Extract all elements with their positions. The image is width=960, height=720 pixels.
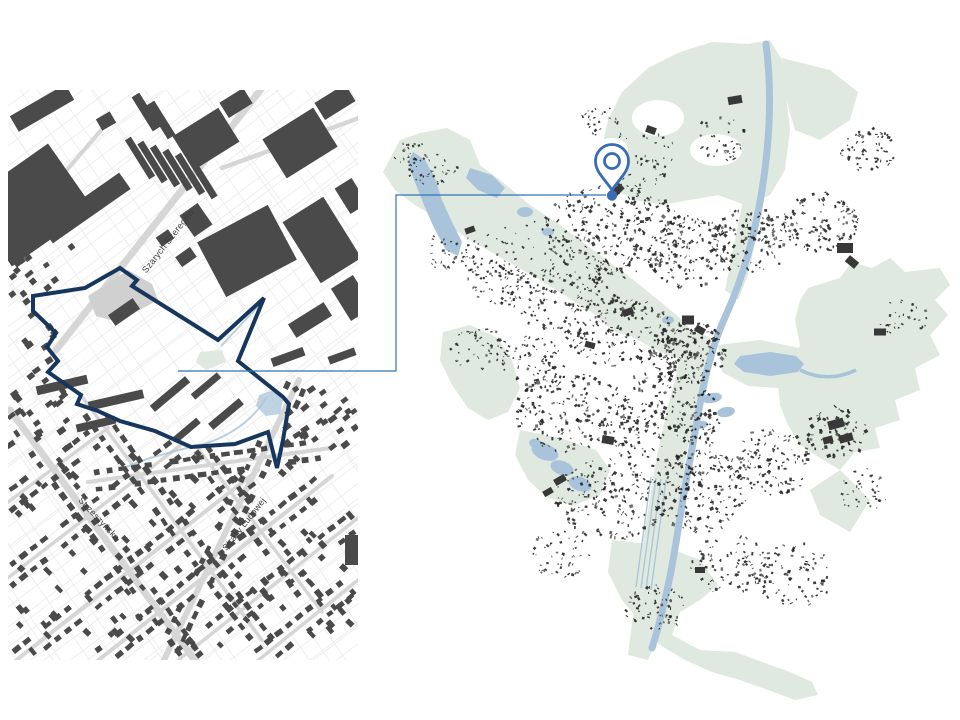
maps-graphic [0, 0, 960, 720]
site-boundary [33, 268, 289, 468]
city-overview-map [383, 40, 950, 700]
slide-canvas: Szarych Szeregów Strzeszyńska Straży Lud… [0, 0, 960, 720]
site-dot [607, 190, 617, 200]
